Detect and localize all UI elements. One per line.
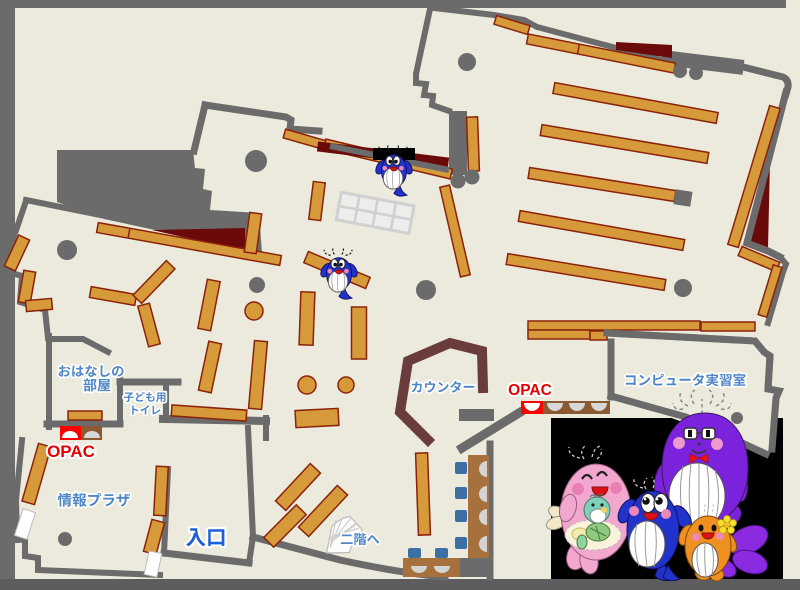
svg-text:OPAC: OPAC xyxy=(508,382,552,399)
svg-text:OPAC: OPAC xyxy=(47,442,95,461)
